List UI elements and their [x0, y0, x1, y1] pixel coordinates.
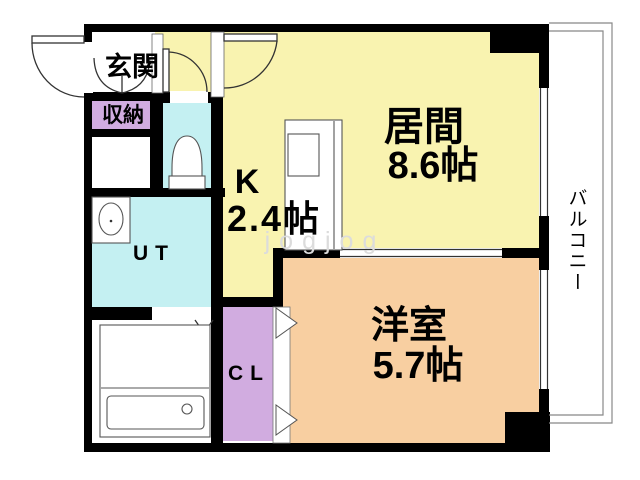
wall-cl-bedroom	[273, 248, 283, 307]
living-door-frame	[211, 32, 224, 97]
ut-label: UT	[127, 240, 181, 266]
entrance-door-arc	[32, 43, 84, 97]
wall-living-bedroom-right	[502, 248, 540, 258]
cl-label: CL	[222, 360, 276, 386]
counter-sink	[288, 134, 319, 176]
bedroom-window	[539, 270, 549, 389]
bedroom-size-label: 5.7帖	[360, 347, 476, 385]
wall-right-middle	[539, 216, 549, 270]
wall-bottom	[84, 443, 550, 452]
washbasin-faucet-dot	[110, 220, 113, 223]
genkan-label: 玄関	[100, 50, 164, 84]
entrance-opening	[83, 42, 93, 93]
balcony-label: バルコニー	[560, 180, 592, 300]
floor-plan: jogjog 玄関 収納 K 2.4帖 居間 8.6帖 洋室 5.7帖 UT C…	[0, 0, 640, 480]
wall-left-above-door	[84, 24, 92, 42]
wall-left	[84, 93, 92, 452]
bath-unit	[100, 325, 210, 437]
living-door-leaf	[224, 34, 277, 41]
wall-toilet-top-left	[150, 92, 170, 103]
washbasin-bowl	[99, 203, 123, 235]
wall-kitchen-cl	[211, 297, 273, 307]
living-label: 居間	[376, 106, 472, 148]
wall-center-column	[211, 97, 223, 443]
living-window	[539, 88, 549, 216]
living-size-label: 8.6帖	[374, 146, 492, 186]
washbasin-icon	[92, 197, 130, 243]
bathtub-drain	[182, 404, 192, 414]
bath-door-opening	[152, 307, 211, 320]
bedroom-label: 洋室	[361, 307, 457, 345]
wall-top	[84, 24, 548, 32]
shuno-label: 収納	[94, 101, 152, 129]
kitchen-size-label: 2.4帖	[218, 199, 330, 239]
toilet-bowl	[172, 136, 202, 176]
toilet-base	[169, 176, 205, 189]
entrance-door-leaf	[32, 36, 84, 43]
toilet-door-opening	[170, 91, 208, 103]
wall-right-upper	[539, 24, 549, 88]
wall-ut-bath	[84, 307, 152, 320]
kitchen-label: K	[227, 163, 267, 201]
